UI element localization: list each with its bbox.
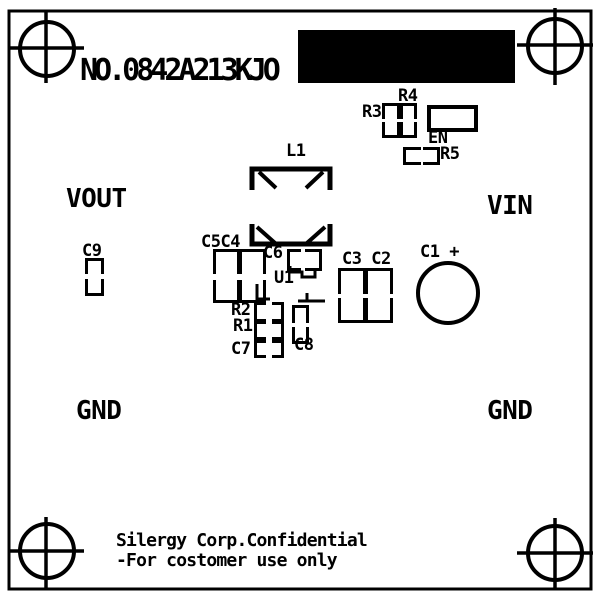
c6-right-pad — [305, 249, 322, 271]
c2-bottom-pad — [365, 298, 393, 323]
r5-left-pad — [403, 147, 421, 165]
r4-bottom-pad — [400, 122, 417, 138]
c4-top-pad — [239, 249, 266, 274]
r2-right-pad — [272, 302, 284, 322]
mounting-hole-bottom-right-icon — [517, 518, 593, 590]
refdes-c6: C6 — [263, 245, 282, 262]
c3-top-pad — [338, 268, 366, 294]
c8-top-pad — [292, 305, 309, 323]
r5-right-pad — [423, 147, 440, 165]
c5-top-pad — [213, 249, 240, 274]
refdes-r1: R1 — [233, 318, 252, 335]
refdes-r4: R4 — [398, 88, 417, 105]
refdes-c1-plus: C1 + — [420, 244, 459, 261]
refdes-c9: C9 — [82, 243, 101, 260]
refdes-c7: C7 — [231, 341, 250, 358]
mounting-hole-top-left-icon — [9, 12, 84, 83]
r3-bottom-pad — [382, 122, 400, 138]
port-label-vin: VIN — [487, 193, 532, 219]
r2-left-pad — [254, 302, 266, 322]
silkscreen-graphics — [0, 0, 600, 600]
board-number-label: NO.0842A213KJO — [80, 56, 277, 86]
c7-left-pad — [254, 340, 266, 358]
c3-bottom-pad — [338, 298, 366, 323]
c2-top-pad — [365, 268, 393, 294]
refdes-c5c4: C5C4 — [201, 234, 240, 251]
c7-right-pad — [272, 340, 284, 358]
port-label-vout: VOUT — [66, 186, 127, 212]
refdes-u1: U1 — [274, 270, 293, 287]
r1-right-pad — [272, 321, 284, 340]
refdes-r5: R5 — [440, 146, 459, 163]
port-label-gnd-left: GND — [76, 398, 121, 424]
refdes-r3: R3 — [362, 104, 381, 121]
capacitor-c1-outline — [418, 263, 478, 323]
refdes-c3c2: C3 C2 — [342, 251, 391, 268]
inductor-l1-outline — [252, 169, 330, 244]
refdes-c8: C8 — [294, 337, 313, 354]
pcb-silkscreen-drawing: NO.0842A213KJO VOUT VIN GND GND L1 C9 C5… — [0, 0, 600, 600]
port-label-gnd-right: GND — [487, 398, 532, 424]
r1-left-pad — [254, 321, 266, 340]
refdes-l1: L1 — [286, 143, 305, 160]
label-area-black-rect — [298, 30, 515, 83]
mounting-hole-bottom-left-icon — [9, 517, 84, 589]
c9-bottom-pad — [85, 279, 104, 296]
confidential-notice-line2: -For costomer use only — [116, 552, 337, 570]
confidential-notice-line1: Silergy Corp.Confidential — [116, 532, 367, 550]
mounting-hole-top-right-icon — [517, 8, 593, 85]
